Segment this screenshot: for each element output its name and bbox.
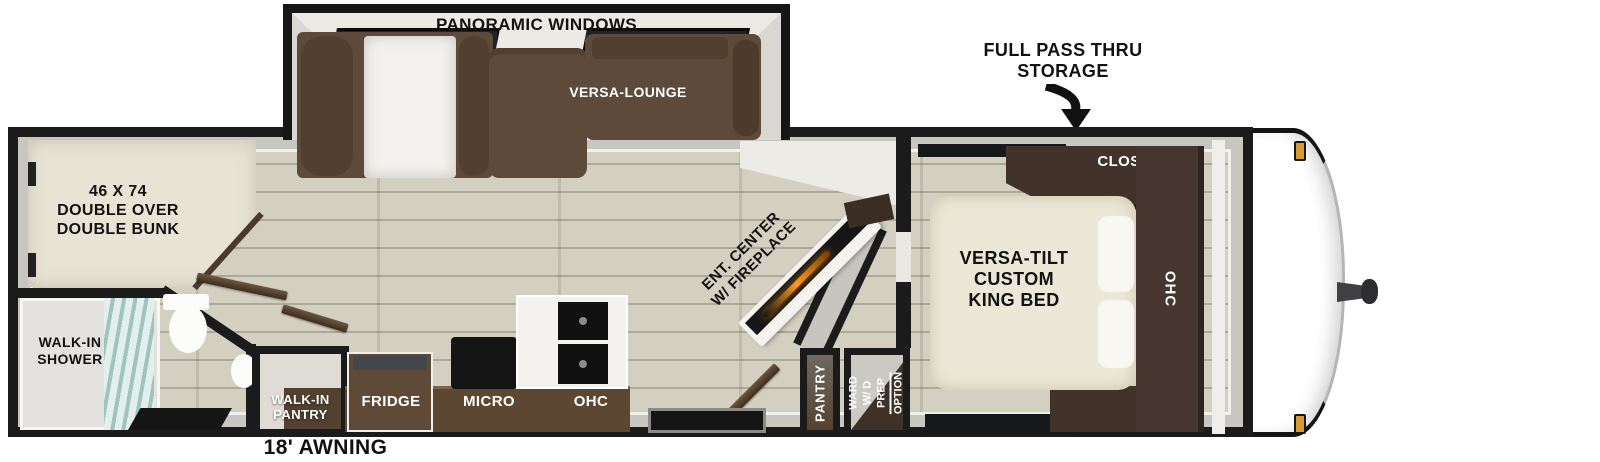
versa-lounge-back-cushion bbox=[592, 37, 728, 59]
walk-in-pantry-label: WALK-IN PANTRY bbox=[260, 392, 341, 423]
awning-label: 18' AWNING bbox=[228, 436, 423, 461]
storage-arrow-icon bbox=[1038, 84, 1096, 132]
bunk-ladder-post bbox=[28, 162, 36, 186]
cabinet-knob-icon bbox=[579, 360, 587, 368]
front-cap bbox=[1253, 128, 1345, 437]
versa-lounge-arm bbox=[733, 40, 759, 136]
slide-bed-bolster bbox=[301, 36, 353, 176]
fridge-label: FRIDGE bbox=[350, 393, 432, 411]
king-bed-label: VERSA-TILT CUSTOM KING BED bbox=[936, 248, 1092, 312]
toilet-bowl bbox=[169, 305, 207, 353]
cabinet-knob-icon bbox=[579, 317, 587, 325]
microwave bbox=[451, 337, 517, 389]
pillow bbox=[1098, 300, 1134, 368]
entry-step bbox=[648, 408, 766, 433]
slide-bed-bolster bbox=[459, 36, 489, 176]
pillow bbox=[1098, 216, 1134, 292]
clearance-light bbox=[1294, 141, 1306, 161]
pass-thru-wall bbox=[1212, 140, 1225, 434]
hitch-ball-icon bbox=[1361, 279, 1378, 304]
bedroom-wall bbox=[896, 282, 911, 348]
nightstand bbox=[1050, 386, 1136, 432]
bath-floor-mat bbox=[128, 408, 232, 430]
ward-closet: WARD W/ D PREP OPTION bbox=[844, 348, 910, 437]
walk-in-pantry-room: WALK-IN PANTRY bbox=[252, 346, 349, 437]
kitchen-ohc-label: OHC bbox=[552, 393, 630, 411]
bedroom-wall bbox=[896, 137, 911, 232]
micro-label: MICRO bbox=[448, 393, 530, 411]
ward-label-group: WARD W/ D PREP OPTION bbox=[848, 371, 907, 413]
fridge-top bbox=[353, 356, 427, 370]
rv-floorplan: FULL PASS THRU STORAGE 18' AWNING PANORA… bbox=[0, 0, 1600, 462]
clearance-light bbox=[1294, 414, 1306, 434]
pass-thru-storage-label: FULL PASS THRU STORAGE bbox=[958, 40, 1168, 82]
bunk-label: 46 X 74 DOUBLE OVER DOUBLE BUNK bbox=[42, 183, 194, 240]
ward-label: WARD W/ D PREP bbox=[848, 371, 889, 413]
pantry-closet: PANTRY bbox=[800, 348, 840, 437]
bedroom-ohc-cabinet: OHC bbox=[1136, 146, 1204, 432]
overhead-cabinet-door bbox=[558, 344, 608, 384]
walk-in-shower-label: WALK-IN SHOWER bbox=[22, 334, 118, 367]
bedroom-ohc-label: OHC bbox=[1162, 271, 1179, 307]
versa-lounge-label: VERSA-LOUNGE bbox=[553, 84, 703, 101]
slide-bed-mattress bbox=[364, 36, 456, 178]
ward-option-label: OPTION bbox=[890, 371, 907, 413]
overhead-cabinet-door bbox=[558, 302, 608, 340]
versa-lounge-chaise bbox=[489, 48, 587, 178]
bunk-ladder-post bbox=[28, 253, 36, 277]
bedroom-pocket-door bbox=[896, 232, 911, 282]
bathroom-wall bbox=[8, 288, 168, 298]
pantry-label: PANTRY bbox=[813, 364, 828, 422]
